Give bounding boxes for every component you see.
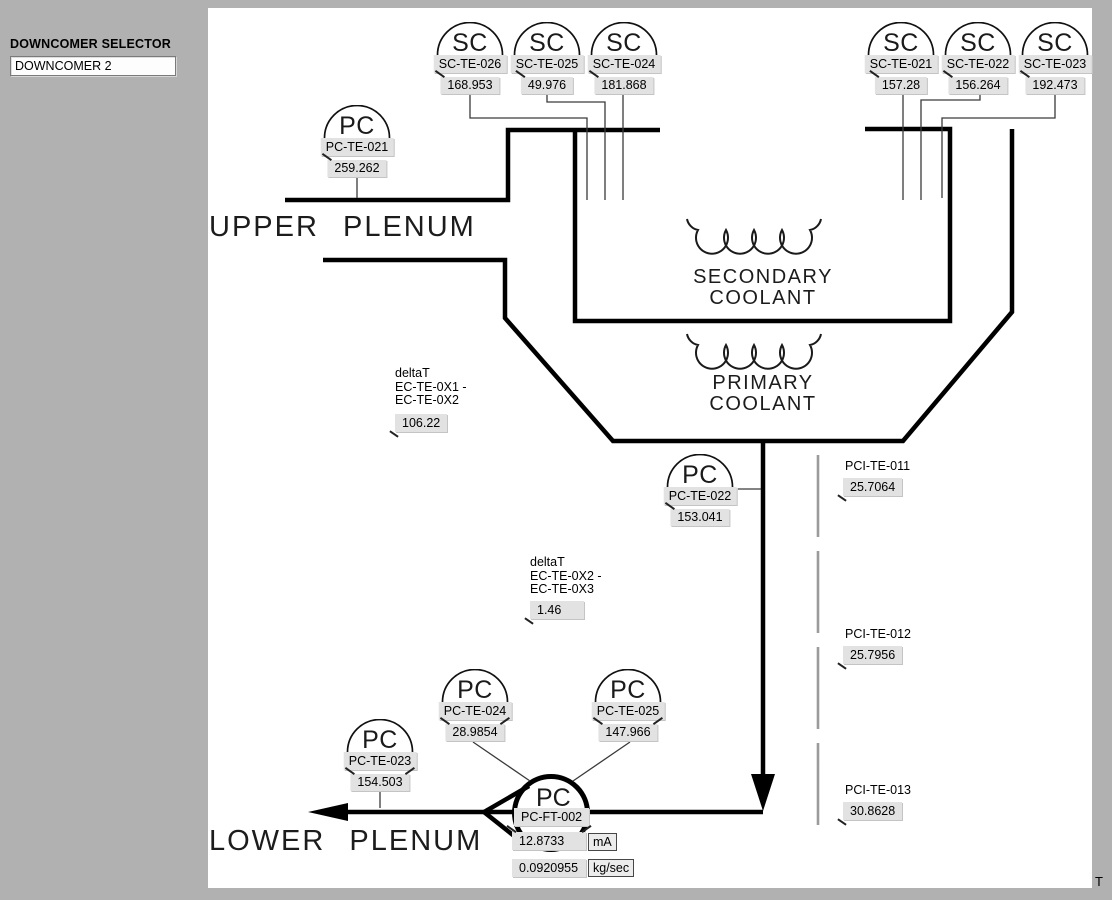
sensor-tag: PC-TE-022: [664, 487, 737, 505]
piping-diagram-svg: [0, 0, 1112, 900]
delta-t-2-line1: deltaT: [530, 556, 602, 570]
sensor-value: 153.041: [670, 509, 729, 526]
leader-sc-te-023: [942, 93, 1055, 198]
delta-t-1-line1: deltaT: [395, 367, 467, 381]
sensor-tag: PC-TE-021: [321, 138, 394, 156]
sensor-symbol: SC: [507, 29, 587, 58]
sensor-pc-te-023: PC PC-TE-023 154.503: [340, 719, 420, 793]
upper-plenum-label: UPPER PLENUM: [209, 211, 476, 244]
sensor-tag: PC-TE-025: [592, 702, 665, 720]
sensor-tag: PC-TE-024: [439, 702, 512, 720]
secondary-coolant-line1: SECONDARY: [663, 267, 863, 288]
delta-t-1-line2: EC-TE-0X1 -: [395, 381, 467, 395]
flow-meter-flow-unit: kg/sec: [588, 859, 634, 877]
sensor-tag: SC-TE-021: [865, 55, 938, 73]
sensor-tag: SC-TE-023: [1019, 55, 1092, 73]
sensor-symbol: PC: [435, 676, 515, 705]
sensor-value: 259.262: [327, 160, 386, 177]
sensor-tag: SC-TE-024: [588, 55, 661, 73]
sensor-symbol: SC: [938, 29, 1018, 58]
pci-te-011-tag: PCI-TE-011: [845, 459, 910, 473]
primary-coolant-label: PRIMARY COOLANT: [663, 373, 863, 415]
delta-t-1-label: deltaT EC-TE-0X1 - EC-TE-0X2: [395, 367, 467, 408]
lower-plenum-label: LOWER PLENUM: [209, 825, 482, 858]
sensor-sc-te-024: SC SC-TE-024 181.868: [584, 22, 664, 96]
sensor-value: 156.264: [948, 77, 1007, 94]
flow-meter-tag: PC-FT-002: [514, 808, 589, 826]
pci-te-011-value: 25.7064: [843, 478, 902, 496]
pci-te-012-value: 25.7956: [843, 646, 902, 664]
sensor-symbol: PC: [660, 461, 740, 490]
sensor-sc-te-021: SC SC-TE-021 157.28: [861, 22, 941, 96]
sensor-sc-te-025: SC SC-TE-025 49.976: [507, 22, 587, 96]
sensor-value: 168.953: [440, 77, 499, 94]
sensor-sc-te-026: SC SC-TE-026 168.953: [430, 22, 510, 96]
sensor-symbol: SC: [430, 29, 510, 58]
sensor-symbol: SC: [1015, 29, 1095, 58]
delta-t-2-value: 1.46: [530, 601, 584, 619]
partial-corner-text: T: [1095, 874, 1103, 889]
sensor-pc-te-021: PC PC-TE-021 259.262: [317, 105, 397, 179]
leader-pc-te-024: [473, 742, 530, 781]
sensor-sc-te-022: SC SC-TE-022 156.264: [938, 22, 1018, 96]
primary-coolant-line1: PRIMARY: [663, 373, 863, 394]
sensor-tag: SC-TE-026: [434, 55, 507, 73]
sensor-symbol: SC: [584, 29, 664, 58]
sensor-symbol: SC: [861, 29, 941, 58]
delta-t-1-line3: EC-TE-0X2: [395, 394, 467, 408]
sensor-value: 154.503: [350, 774, 409, 791]
sensor-symbol: PC: [317, 112, 397, 141]
sensor-value: 28.9854: [445, 724, 504, 741]
primary-coolant-line2: COOLANT: [663, 394, 863, 415]
pci-te-013-tag: PCI-TE-013: [845, 783, 911, 797]
flow-meter-flow-value: 0.0920955: [512, 859, 586, 877]
delta-t-2-label: deltaT EC-TE-0X2 - EC-TE-0X3: [530, 556, 602, 597]
delta-t-2-line2: EC-TE-0X2 -: [530, 570, 602, 584]
primary-coolant-coil-icon: [687, 334, 821, 369]
sensor-tag: PC-TE-023: [344, 752, 417, 770]
secondary-coolant-coil-icon: [687, 219, 821, 254]
sensor-value: 49.976: [521, 77, 573, 94]
leader-sc-te-026: [470, 93, 587, 200]
lower-plenum-arrowhead-icon: [308, 803, 348, 821]
sensor-symbol: PC: [340, 726, 420, 755]
sensor-sc-te-023: SC SC-TE-023 192.473: [1015, 22, 1095, 96]
sensor-tag: SC-TE-022: [942, 55, 1015, 73]
leader-pc-te-025: [573, 742, 630, 781]
sensor-value: 192.473: [1025, 77, 1084, 94]
downcomer-arrowhead-icon: [751, 774, 775, 811]
pci-te-013-value: 30.8628: [843, 802, 902, 820]
sensor-value: 147.966: [598, 724, 657, 741]
sensor-value: 181.868: [594, 77, 653, 94]
flow-meter-current-unit: mA: [588, 833, 617, 851]
secondary-coolant-line2: COOLANT: [663, 288, 863, 309]
sensor-pc-te-025: PC PC-TE-025 147.966: [588, 669, 668, 743]
flow-meter-current-value: 12.8733: [512, 832, 586, 850]
delta-t-1-value: 106.22: [395, 414, 447, 432]
pci-te-012-tag: PCI-TE-012: [845, 627, 911, 641]
sensor-tag: SC-TE-025: [511, 55, 584, 73]
sensor-pc-te-022: PC PC-TE-022 153.041: [660, 454, 740, 528]
secondary-coolant-label: SECONDARY COOLANT: [663, 267, 863, 309]
sensor-value: 157.28: [875, 77, 927, 94]
sensor-pc-te-024: PC PC-TE-024 28.9854: [435, 669, 515, 743]
delta-t-2-line3: EC-TE-0X3: [530, 583, 602, 597]
sensor-symbol: PC: [588, 676, 668, 705]
